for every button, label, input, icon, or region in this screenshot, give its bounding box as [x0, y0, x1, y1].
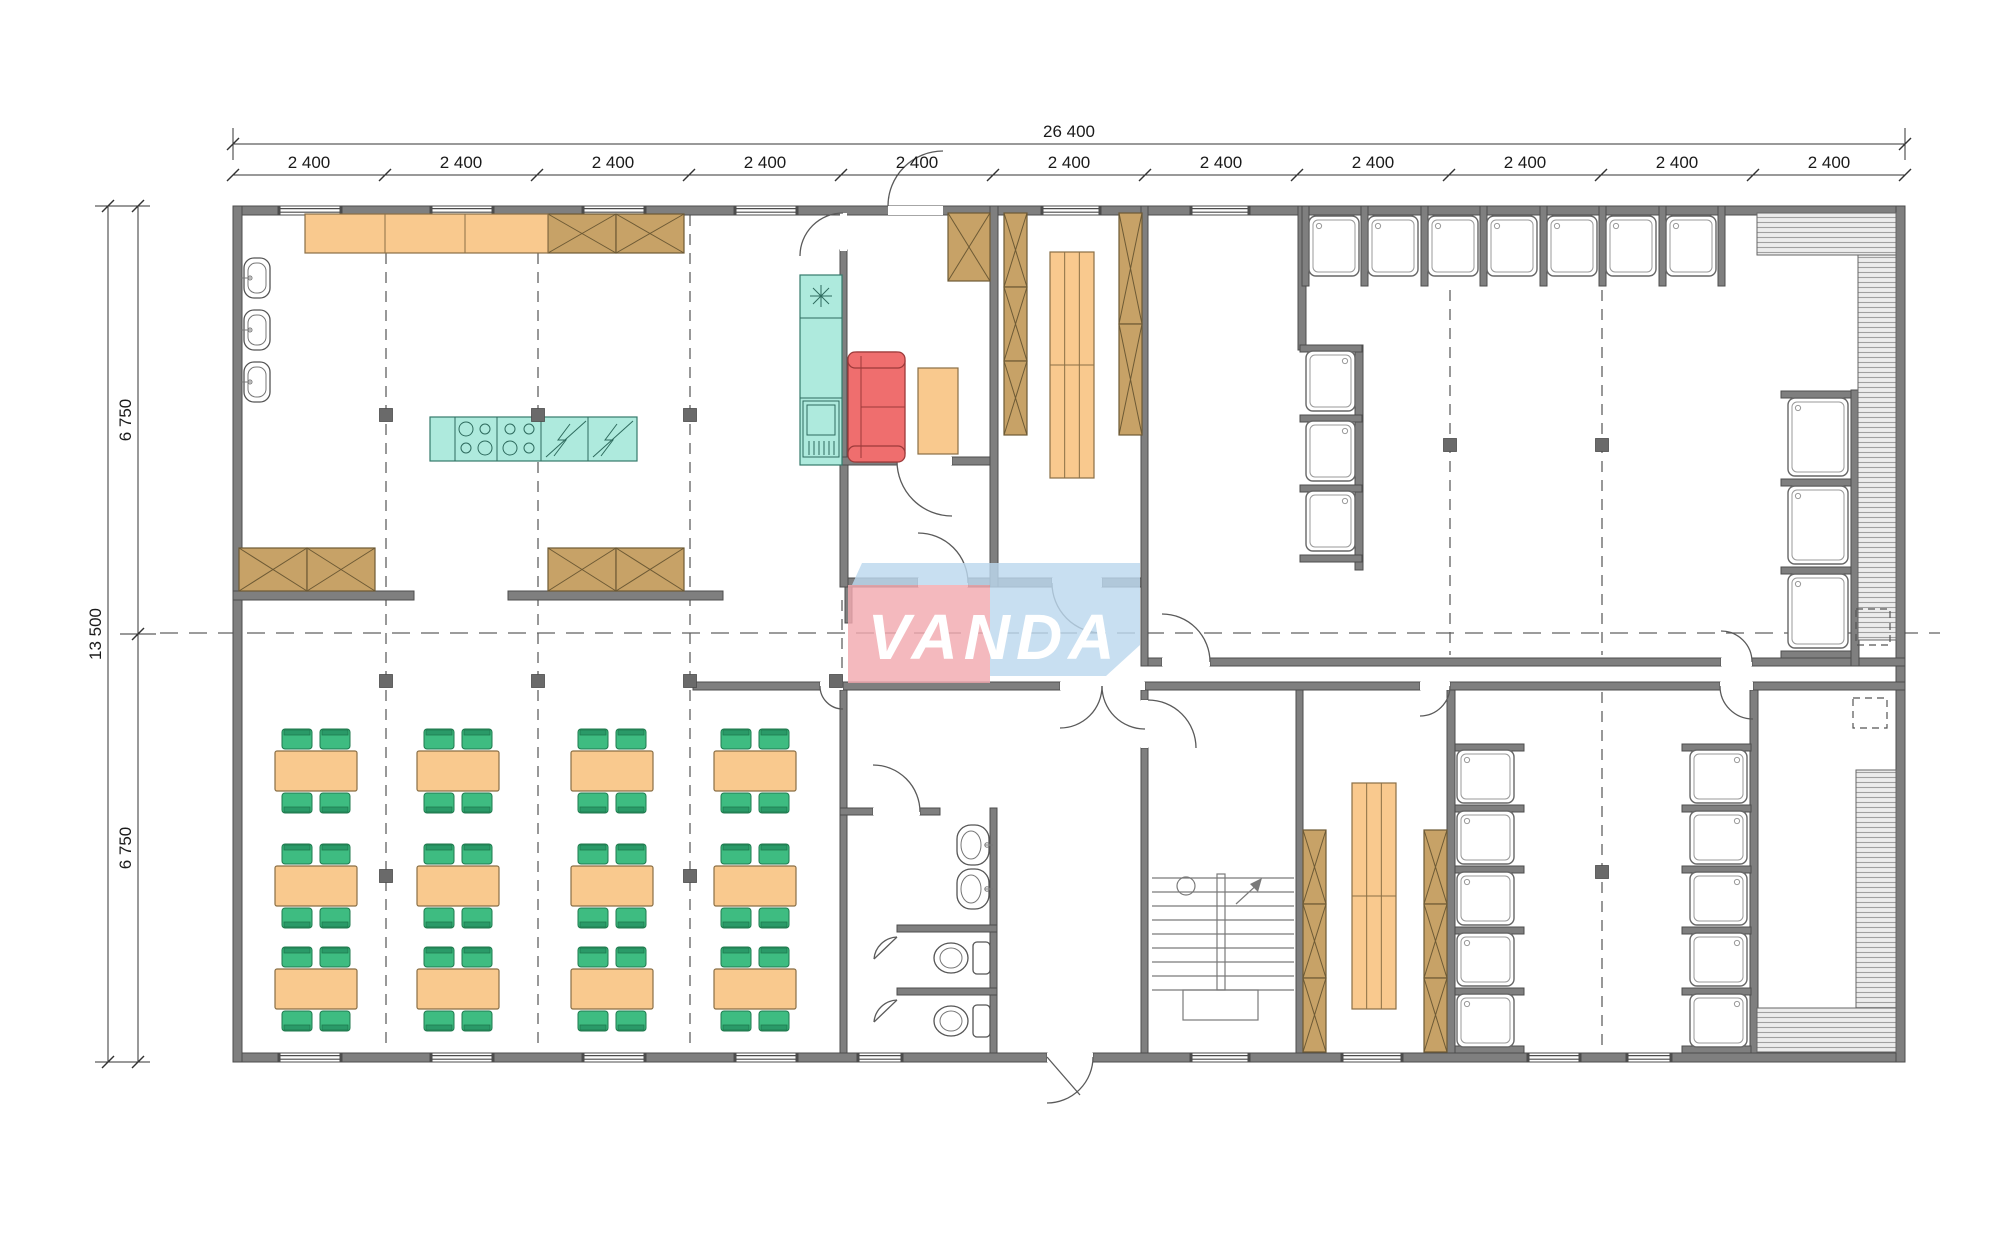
dim-label-half-height: 6 750: [116, 827, 135, 870]
sofa: [848, 352, 905, 462]
column-marker: [684, 675, 697, 688]
chair-back: [464, 845, 490, 850]
dining-table: [275, 969, 357, 1009]
storage-cabinet: [239, 548, 307, 591]
chair-back: [618, 1025, 644, 1030]
dim-label-total-width: 26 400: [1043, 122, 1095, 141]
dining-table-group: [275, 844, 357, 928]
wall: [1145, 682, 1420, 690]
door-swing-arc: [1162, 614, 1210, 662]
column-marker: [1596, 439, 1609, 452]
dim-label-bay: 2 400: [1504, 153, 1547, 172]
window-jamb: [278, 1053, 281, 1062]
staircase: [1152, 874, 1294, 1020]
window-jamb: [492, 1053, 495, 1062]
wc-basin: [957, 869, 993, 909]
window: [431, 1054, 493, 1062]
lounge-table: [918, 368, 958, 454]
chair-back: [322, 1025, 348, 1030]
shower-partition-wall: [1781, 651, 1851, 658]
floor-plan-page: VANDA 26 4002 4002 4002 4002 4002 4002 4…: [0, 0, 2000, 1235]
storage-cabinet: [1303, 978, 1326, 1052]
dining-table: [275, 866, 357, 906]
shower-tray: [1457, 811, 1514, 864]
window-jamb: [734, 206, 737, 215]
shower-partition-wall: [1302, 206, 1309, 286]
kitchen-island: [430, 417, 637, 461]
door-opening: [873, 808, 920, 815]
wall: [1148, 658, 1162, 666]
dim-label-bay: 2 400: [896, 153, 939, 172]
dim-label-bay: 2 400: [1656, 153, 1699, 172]
chair-back: [464, 948, 490, 953]
storage-cabinet: [1119, 213, 1142, 324]
window: [735, 207, 797, 215]
shower-tray: [1457, 872, 1514, 925]
storage-cabinet: [1424, 830, 1447, 904]
chair-back: [426, 845, 452, 850]
window-jamb: [278, 206, 281, 215]
wall: [1355, 345, 1363, 570]
chair-back: [284, 807, 310, 812]
shower-partition-wall: [1361, 206, 1368, 286]
dining-table: [714, 969, 796, 1009]
wall: [840, 808, 873, 815]
shower-tray: [1457, 750, 1514, 803]
chair-back: [464, 730, 490, 735]
shower-tray: [1690, 933, 1747, 986]
storage-cabinet: [1004, 213, 1027, 287]
door-opening: [1141, 700, 1148, 748]
shower-tray: [1690, 994, 1747, 1047]
wall: [840, 465, 848, 587]
dim-label-bay: 2 400: [1048, 153, 1091, 172]
wall: [1296, 690, 1303, 1053]
shower-partition-wall: [1781, 479, 1851, 486]
window-jamb: [1041, 206, 1044, 215]
window-jamb: [1527, 1053, 1530, 1062]
kitchen-counter: [305, 214, 548, 253]
window: [1042, 207, 1100, 215]
sofa-armrest: [848, 352, 905, 368]
dining-table: [275, 751, 357, 791]
dining-table-group: [417, 947, 499, 1031]
storage-cabinet: [616, 548, 684, 591]
dining-table: [714, 866, 796, 906]
shower-tray: [1666, 216, 1716, 276]
chair-back: [284, 845, 310, 850]
storage-cabinet: [1303, 904, 1326, 978]
chair-back: [464, 1025, 490, 1030]
wall: [1210, 658, 1721, 666]
shower-tray: [1788, 486, 1848, 564]
dining-table: [417, 866, 499, 906]
window-jamb: [1248, 1053, 1251, 1062]
dining-table-group: [571, 729, 653, 813]
dining-table: [571, 751, 653, 791]
storage-cabinet: [1004, 361, 1027, 435]
chair-back: [761, 845, 787, 850]
wall: [1752, 658, 1905, 666]
chair-back: [284, 1025, 310, 1030]
window: [1627, 1054, 1671, 1062]
window-jamb: [1190, 1053, 1193, 1062]
shower-partition-wall: [1781, 391, 1851, 398]
door-swing-arc: [1148, 700, 1196, 748]
chair-back: [580, 1025, 606, 1030]
chair-back: [723, 730, 749, 735]
sauna-bench-deck: [1858, 255, 1896, 640]
slatted-bench: [1050, 252, 1094, 478]
window-jamb: [1626, 1053, 1629, 1062]
column-marker: [684, 409, 697, 422]
wall: [233, 206, 242, 1062]
dining-table-group: [275, 729, 357, 813]
door-opening: [1420, 682, 1450, 690]
shower-partition-wall: [1718, 206, 1725, 286]
window: [583, 1054, 645, 1062]
shower-tray: [1606, 216, 1656, 276]
door-opening: [840, 213, 847, 251]
toilet: [934, 942, 990, 974]
dim-label-bay: 2 400: [288, 153, 331, 172]
door-opening: [888, 206, 943, 215]
wall: [1447, 690, 1455, 1053]
dining-table-group: [714, 729, 796, 813]
chair-back: [464, 807, 490, 812]
window-jamb: [901, 1053, 904, 1062]
door-swing-arc: [1721, 631, 1752, 662]
wall: [233, 591, 414, 600]
chair-back: [464, 922, 490, 927]
shower-partition-wall: [1599, 206, 1606, 286]
floor-plan-drawing: VANDA 26 4002 4002 4002 4002 4002 4002 4…: [0, 0, 2000, 1235]
shower-partition-wall: [1540, 206, 1547, 286]
door-swing-arc: [800, 213, 843, 256]
shower-tray: [1306, 351, 1355, 411]
sauna-bench-deck: [1856, 770, 1896, 1010]
window: [279, 207, 341, 215]
dim-label-bay: 2 400: [592, 153, 635, 172]
chair-back: [618, 922, 644, 927]
chair-back: [580, 948, 606, 953]
shower-tray: [1309, 216, 1359, 276]
window-jamb: [1341, 1053, 1344, 1062]
dining-table: [571, 969, 653, 1009]
chair-back: [580, 845, 606, 850]
chair-back: [761, 730, 787, 735]
door-swing-arc: [1060, 686, 1102, 728]
dim-label-total-height: 13 500: [86, 608, 105, 660]
window: [431, 207, 493, 215]
window-jamb: [430, 1053, 433, 1062]
window: [1528, 1054, 1580, 1062]
wc-basin: [957, 825, 993, 865]
chair-back: [618, 948, 644, 953]
sauna-bench-deck: [1757, 1008, 1896, 1052]
shower-tray: [1487, 216, 1537, 276]
shower-tray: [1788, 398, 1848, 476]
wall: [843, 682, 1060, 690]
door-opening: [897, 457, 952, 465]
door-swing-arc: [1102, 686, 1145, 729]
shower-tray: [1306, 421, 1355, 481]
wall: [1141, 748, 1148, 1053]
dim-label-bay: 2 400: [1808, 153, 1851, 172]
door-swing-arc: [873, 765, 920, 812]
chair-back: [426, 807, 452, 812]
chair-back: [723, 922, 749, 927]
wall: [1141, 690, 1148, 700]
wall: [508, 591, 723, 600]
chair-back: [580, 730, 606, 735]
window: [279, 1054, 341, 1062]
window-jamb: [796, 1053, 799, 1062]
toilet: [934, 1005, 990, 1037]
chair-back: [580, 922, 606, 927]
window-jamb: [1190, 206, 1193, 215]
dining-table-group: [275, 947, 357, 1031]
dim-label-half-height: 6 750: [116, 399, 135, 442]
column-marker: [380, 409, 393, 422]
door-swing-arc: [1420, 686, 1450, 716]
chair-back: [761, 922, 787, 927]
column-marker: [380, 675, 393, 688]
chair-back: [322, 730, 348, 735]
kitchen-tall-unit: [800, 275, 842, 465]
storage-cabinet: [307, 548, 375, 591]
dim-label-bay: 2 400: [1352, 153, 1395, 172]
shower-tray: [1788, 574, 1848, 648]
chair-back: [322, 845, 348, 850]
storage-cabinet: [548, 548, 616, 591]
dining-table: [417, 751, 499, 791]
chair-back: [723, 807, 749, 812]
window-jamb: [1401, 1053, 1404, 1062]
wall: [1450, 682, 1720, 690]
dining-table-group: [571, 844, 653, 928]
sofa-armrest: [848, 446, 905, 462]
column-marker: [1596, 866, 1609, 879]
chair-back: [723, 845, 749, 850]
column-marker: [1444, 439, 1457, 452]
chair-back: [426, 1025, 452, 1030]
stair-landing: [1183, 990, 1258, 1020]
dim-label-bay: 2 400: [744, 153, 787, 172]
wall: [693, 682, 820, 690]
window: [1342, 1054, 1402, 1062]
window-jamb: [1099, 206, 1102, 215]
chair-back: [761, 948, 787, 953]
door-swing-arc: [1720, 686, 1753, 719]
window: [1191, 207, 1249, 215]
dining-table: [714, 751, 796, 791]
shower-tray: [1428, 216, 1478, 276]
shower-tray: [1368, 216, 1418, 276]
kitchen-sink: [241, 362, 270, 402]
column-marker: [684, 870, 697, 883]
window-jamb: [1579, 1053, 1582, 1062]
floor-hatch: [1853, 698, 1887, 728]
door-opening: [1162, 658, 1210, 666]
dining-table-group: [714, 947, 796, 1031]
shower-tray: [1306, 491, 1355, 551]
kitchen-sink: [241, 258, 270, 298]
storage-cabinet: [1303, 830, 1326, 904]
window-jamb: [1670, 1053, 1673, 1062]
dim-label-bay: 2 400: [440, 153, 483, 172]
dining-table-group: [571, 947, 653, 1031]
shower-tray: [1547, 216, 1597, 276]
wall: [1896, 206, 1905, 1062]
vanda-watermark: VANDA: [848, 563, 1140, 683]
wall: [920, 808, 940, 815]
chair-back: [761, 807, 787, 812]
chair-back: [723, 1025, 749, 1030]
column-marker: [830, 675, 843, 688]
column-marker: [532, 675, 545, 688]
shower-tray: [1690, 750, 1747, 803]
chair-back: [761, 1025, 787, 1030]
wall: [897, 925, 997, 932]
chair-back: [322, 922, 348, 927]
wall: [990, 206, 998, 587]
dining-table: [417, 969, 499, 1009]
column-marker: [532, 409, 545, 422]
column-marker: [380, 870, 393, 883]
storage-cabinet: [948, 213, 990, 281]
sauna-bench-deck: [1757, 213, 1896, 255]
storage-cabinet: [1424, 904, 1447, 978]
wall: [1753, 682, 1905, 690]
chair-back: [723, 948, 749, 953]
door-opening: [1720, 682, 1753, 690]
dining-table: [571, 866, 653, 906]
shower-tray: [1457, 994, 1514, 1047]
chair-back: [426, 922, 452, 927]
shower-tray: [1690, 872, 1747, 925]
shower-partition-wall: [1659, 206, 1666, 286]
watermark-text: VANDA: [868, 601, 1121, 673]
chair-back: [618, 730, 644, 735]
storage-cabinet: [1119, 324, 1142, 435]
window-jamb: [796, 206, 799, 215]
chair-back: [580, 807, 606, 812]
wall: [840, 690, 847, 1053]
door-swing-arc: [897, 461, 952, 516]
chair-back: [618, 845, 644, 850]
dining-table-group: [417, 844, 499, 928]
window: [858, 1054, 902, 1062]
door-swing-arc: [1047, 1057, 1093, 1103]
shower-tray: [1690, 811, 1747, 864]
storage-cabinet: [1424, 978, 1447, 1052]
door-opening: [1721, 658, 1752, 666]
storage-cabinet: [548, 214, 616, 253]
window-jamb: [734, 1053, 737, 1062]
chair-back: [284, 730, 310, 735]
window: [583, 207, 645, 215]
window-jamb: [857, 1053, 860, 1062]
kitchen-sink: [241, 310, 270, 350]
dining-table-group: [714, 844, 796, 928]
wall: [897, 988, 997, 995]
chair-back: [618, 807, 644, 812]
door-leaf: [1047, 1057, 1080, 1095]
chair-back: [426, 948, 452, 953]
storage-cabinet: [1004, 287, 1027, 361]
shower-tray: [1457, 933, 1514, 986]
window: [735, 1054, 797, 1062]
shower-partition-wall: [1421, 206, 1428, 286]
dining-table-group: [417, 729, 499, 813]
shower-partition-wall: [1781, 567, 1851, 574]
window-jamb: [644, 1053, 647, 1062]
chair-back: [322, 948, 348, 953]
storage-cabinet: [616, 214, 684, 253]
slatted-bench: [1352, 783, 1396, 1009]
door-opening: [1047, 1053, 1093, 1062]
chair-back: [426, 730, 452, 735]
chair-back: [284, 922, 310, 927]
shower-partition-wall: [1480, 206, 1487, 286]
chair-back: [284, 948, 310, 953]
window: [1191, 1054, 1249, 1062]
window-jamb: [1248, 206, 1251, 215]
chair-back: [322, 807, 348, 812]
window-jamb: [340, 1053, 343, 1062]
shower-partition-wall: [1300, 555, 1362, 562]
window-jamb: [582, 1053, 585, 1062]
dim-label-bay: 2 400: [1200, 153, 1243, 172]
